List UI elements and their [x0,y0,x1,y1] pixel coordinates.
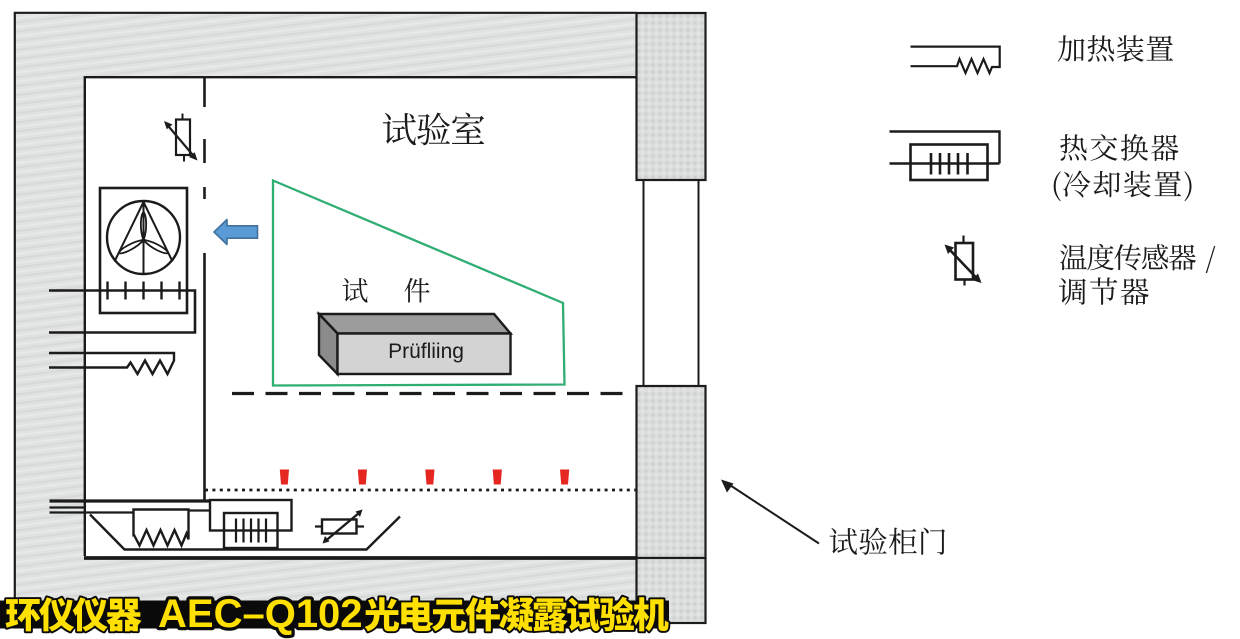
svg-text:AEC–Q102: AEC–Q102 [158,592,363,636]
svg-text:Prüfliing: Prüfliing [388,340,464,363]
